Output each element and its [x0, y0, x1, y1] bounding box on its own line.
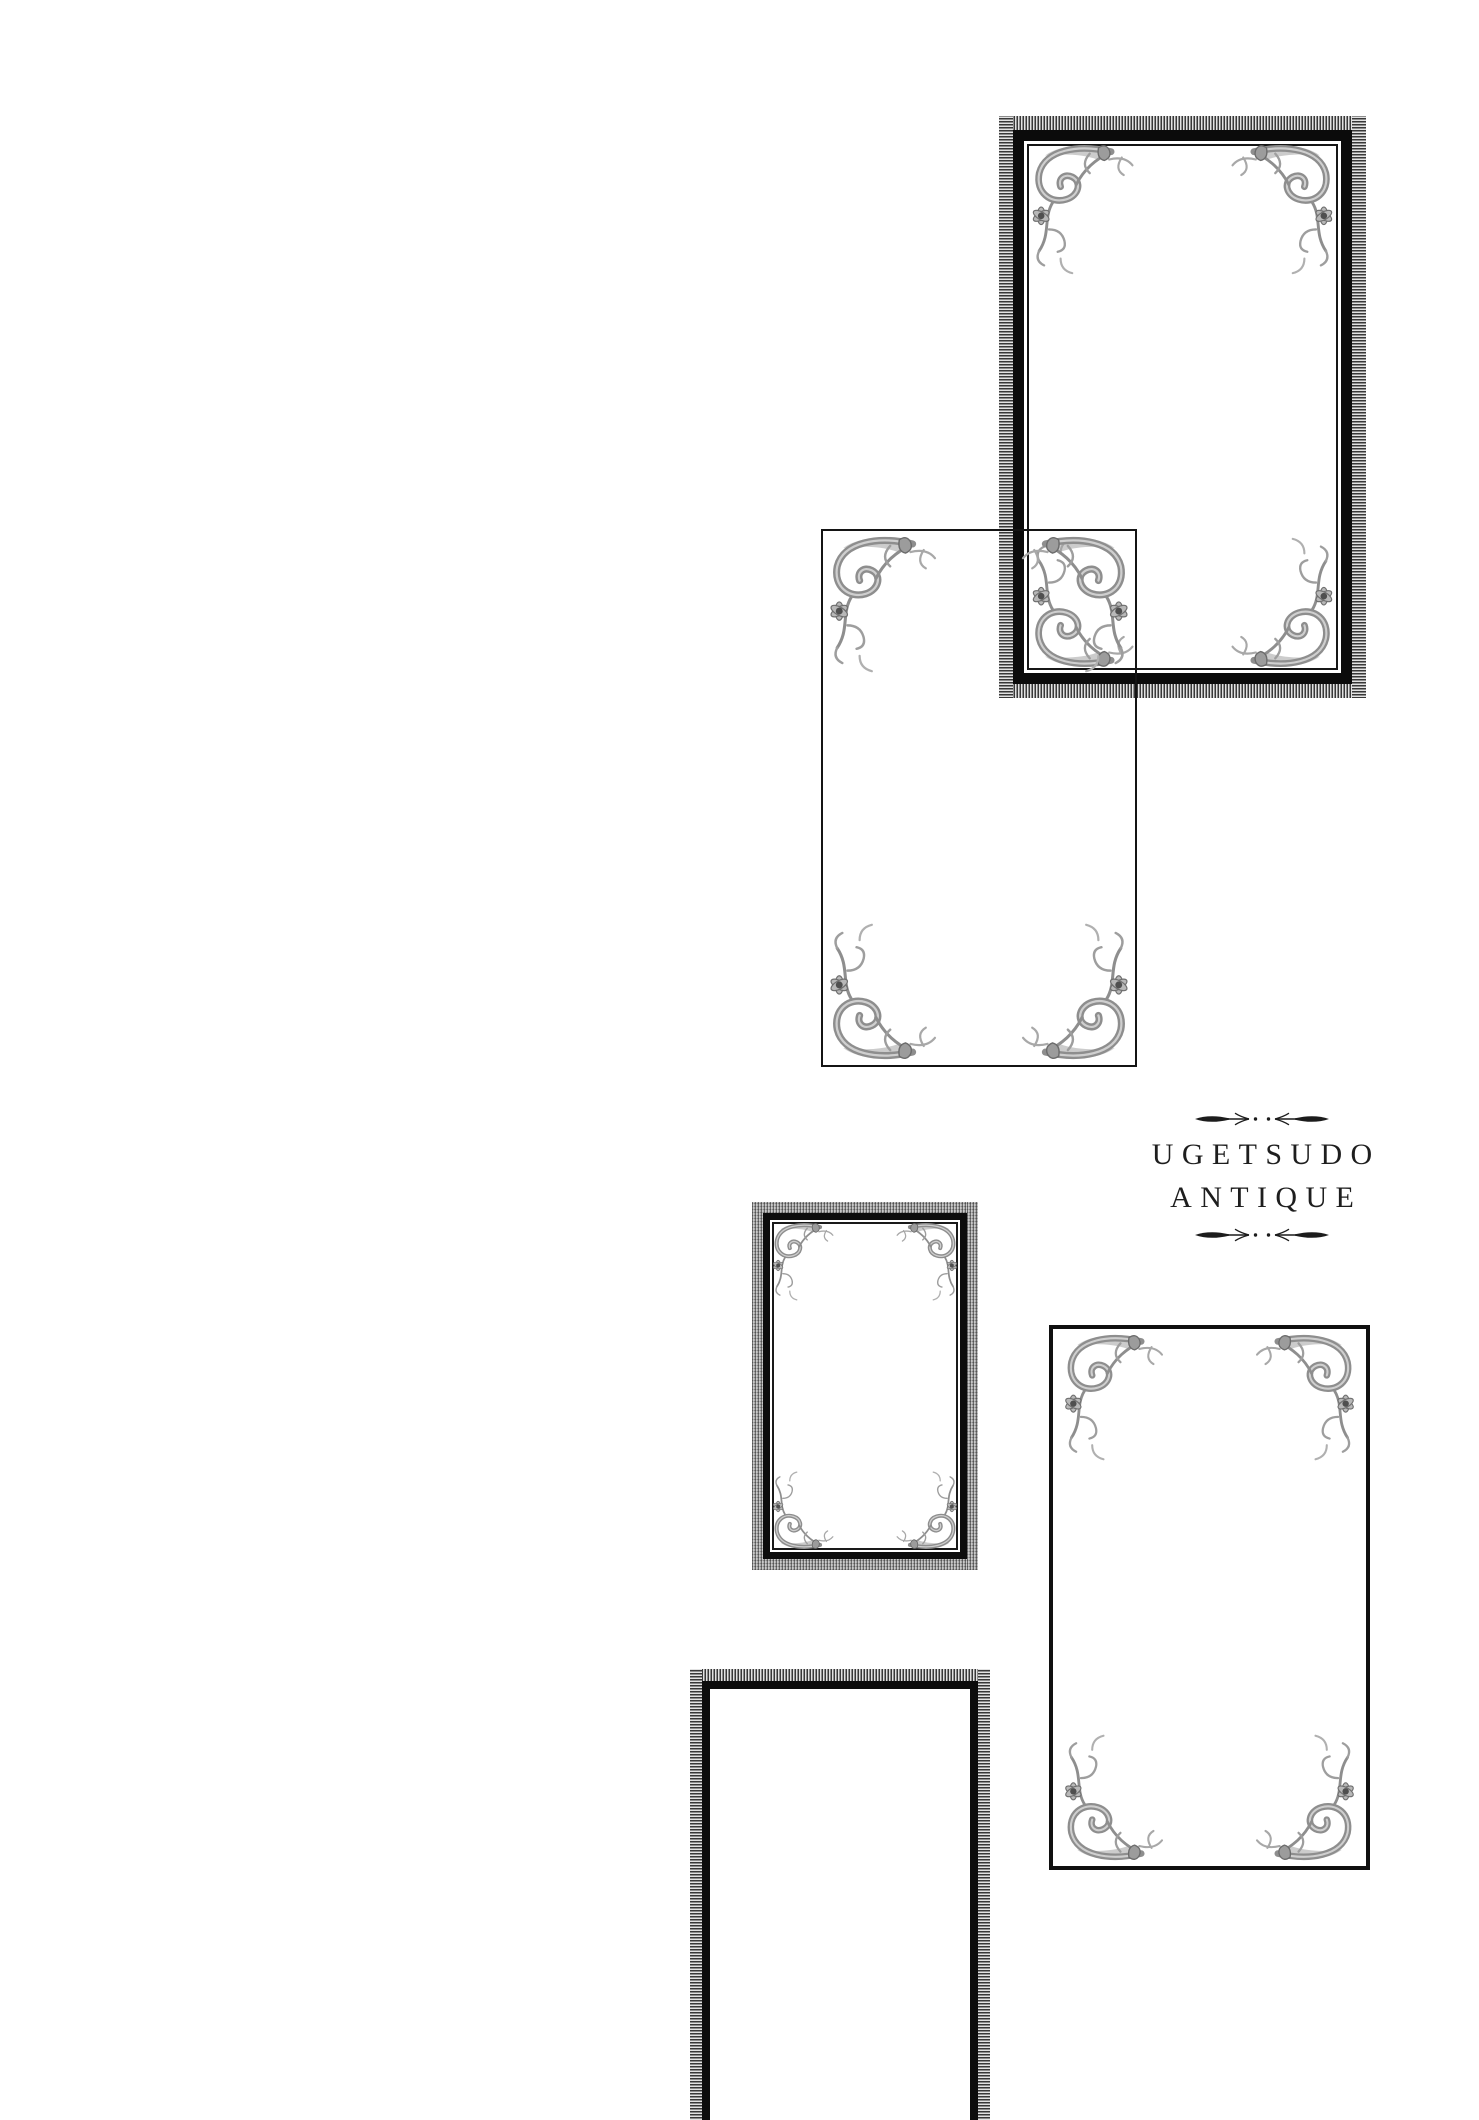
frame-card-5 [690, 1669, 990, 2120]
corner-flourish-icon [1230, 142, 1338, 278]
ribbed-border-right [978, 1669, 990, 2120]
corner-flourish-icon [1251, 1332, 1363, 1464]
ribbed-border-right [1352, 116, 1366, 698]
woven-border-left [752, 1202, 763, 1570]
corner-flourish-icon [896, 1468, 960, 1552]
brand-block: UGETSUDO ANTIQUE [1140, 1112, 1384, 1242]
page: UGETSUDO ANTIQUE [0, 0, 1479, 2120]
corner-flourish-icon [1021, 533, 1133, 677]
woven-border-top [752, 1202, 978, 1213]
frame-card-3 [752, 1202, 978, 1570]
corner-flourish-icon [1251, 1731, 1363, 1863]
black-border [702, 1681, 978, 2120]
corner-flourish-icon [770, 1468, 834, 1552]
corner-flourish-icon [1027, 142, 1135, 278]
corner-flourish-icon [896, 1220, 960, 1304]
corner-flourish-icon [770, 1220, 834, 1304]
ribbed-border-top [999, 116, 1366, 130]
corner-flourish-icon [1021, 919, 1133, 1063]
arrow-divider-icon [1192, 1112, 1332, 1126]
ribbed-border-top [690, 1669, 990, 1681]
brand-name-line2: ANTIQUE [1140, 1181, 1384, 1215]
woven-border-bottom [752, 1559, 978, 1570]
arrow-divider-icon [1192, 1228, 1332, 1242]
corner-flourish-icon [825, 919, 937, 1063]
frame-card-2 [821, 529, 1137, 1067]
corner-flourish-icon [1230, 534, 1338, 670]
brand-name-line1: UGETSUDO [1140, 1138, 1384, 1172]
woven-border-right [967, 1202, 978, 1570]
corner-flourish-icon [1056, 1731, 1168, 1863]
frame-card-4 [1049, 1325, 1370, 1870]
corner-flourish-icon [1056, 1332, 1168, 1464]
corner-flourish-icon [825, 533, 937, 677]
ribbed-border-left [690, 1669, 702, 2120]
